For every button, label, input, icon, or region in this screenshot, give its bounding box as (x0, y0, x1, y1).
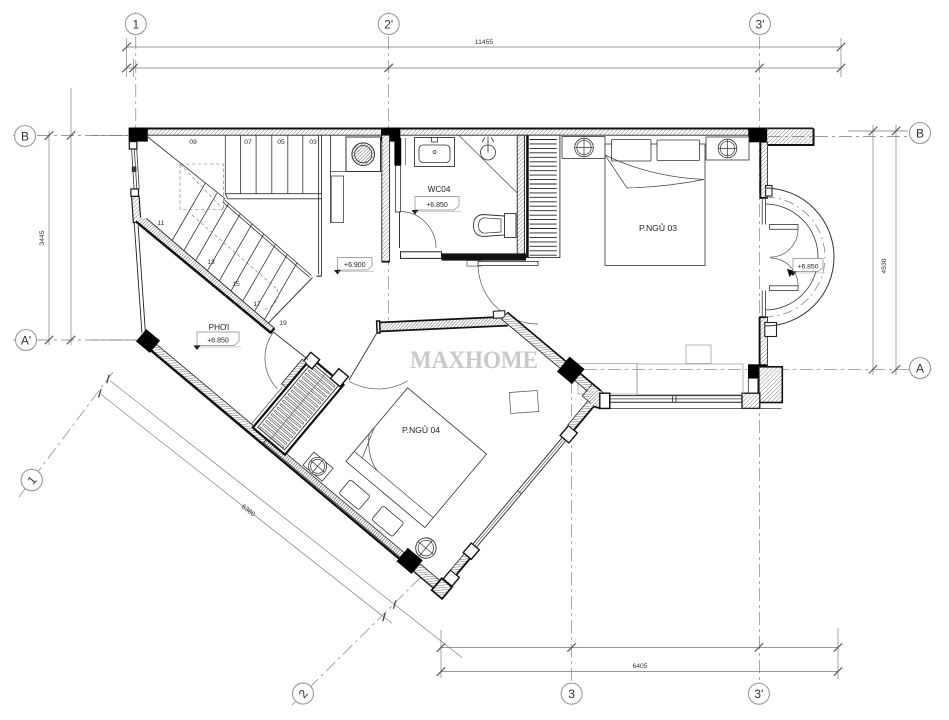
svg-text:3: 3 (568, 687, 575, 701)
svg-text:09: 09 (189, 139, 197, 146)
svg-text:6405: 6405 (632, 663, 647, 670)
svg-text:+6.850: +6.850 (207, 338, 229, 345)
svg-text:B: B (21, 129, 29, 143)
svg-text:3': 3' (756, 17, 765, 31)
svg-text:A: A (916, 361, 924, 375)
svg-text:2': 2' (384, 17, 393, 31)
svg-text:+6.850: +6.850 (798, 264, 819, 271)
svg-text:PHƠI: PHƠI (209, 323, 230, 332)
svg-text:4530: 4530 (881, 258, 888, 273)
svg-text:A': A' (21, 333, 31, 347)
svg-text:11455: 11455 (475, 39, 494, 46)
svg-text:11: 11 (157, 220, 164, 227)
svg-text:+6.850: +6.850 (426, 202, 448, 209)
svg-text:17: 17 (253, 301, 261, 308)
svg-text:19: 19 (279, 320, 287, 327)
svg-text:03: 03 (309, 139, 317, 146)
svg-text:P.NGỦ 03: P.NGỦ 03 (639, 222, 677, 233)
svg-text:1: 1 (132, 17, 139, 31)
svg-text:WC04: WC04 (428, 185, 451, 194)
svg-text:3': 3' (754, 687, 763, 701)
svg-text:B: B (916, 126, 924, 140)
svg-text:P.NGỦ 04: P.NGỦ 04 (402, 424, 440, 435)
svg-text:07: 07 (244, 139, 252, 146)
svg-text:MAXHOME: MAXHOME (410, 347, 538, 374)
svg-text:+6.900: +6.900 (344, 262, 366, 269)
svg-text:3445: 3445 (39, 230, 46, 245)
svg-text:13: 13 (207, 259, 215, 266)
svg-text:05: 05 (277, 139, 285, 146)
svg-text:15: 15 (232, 281, 240, 288)
